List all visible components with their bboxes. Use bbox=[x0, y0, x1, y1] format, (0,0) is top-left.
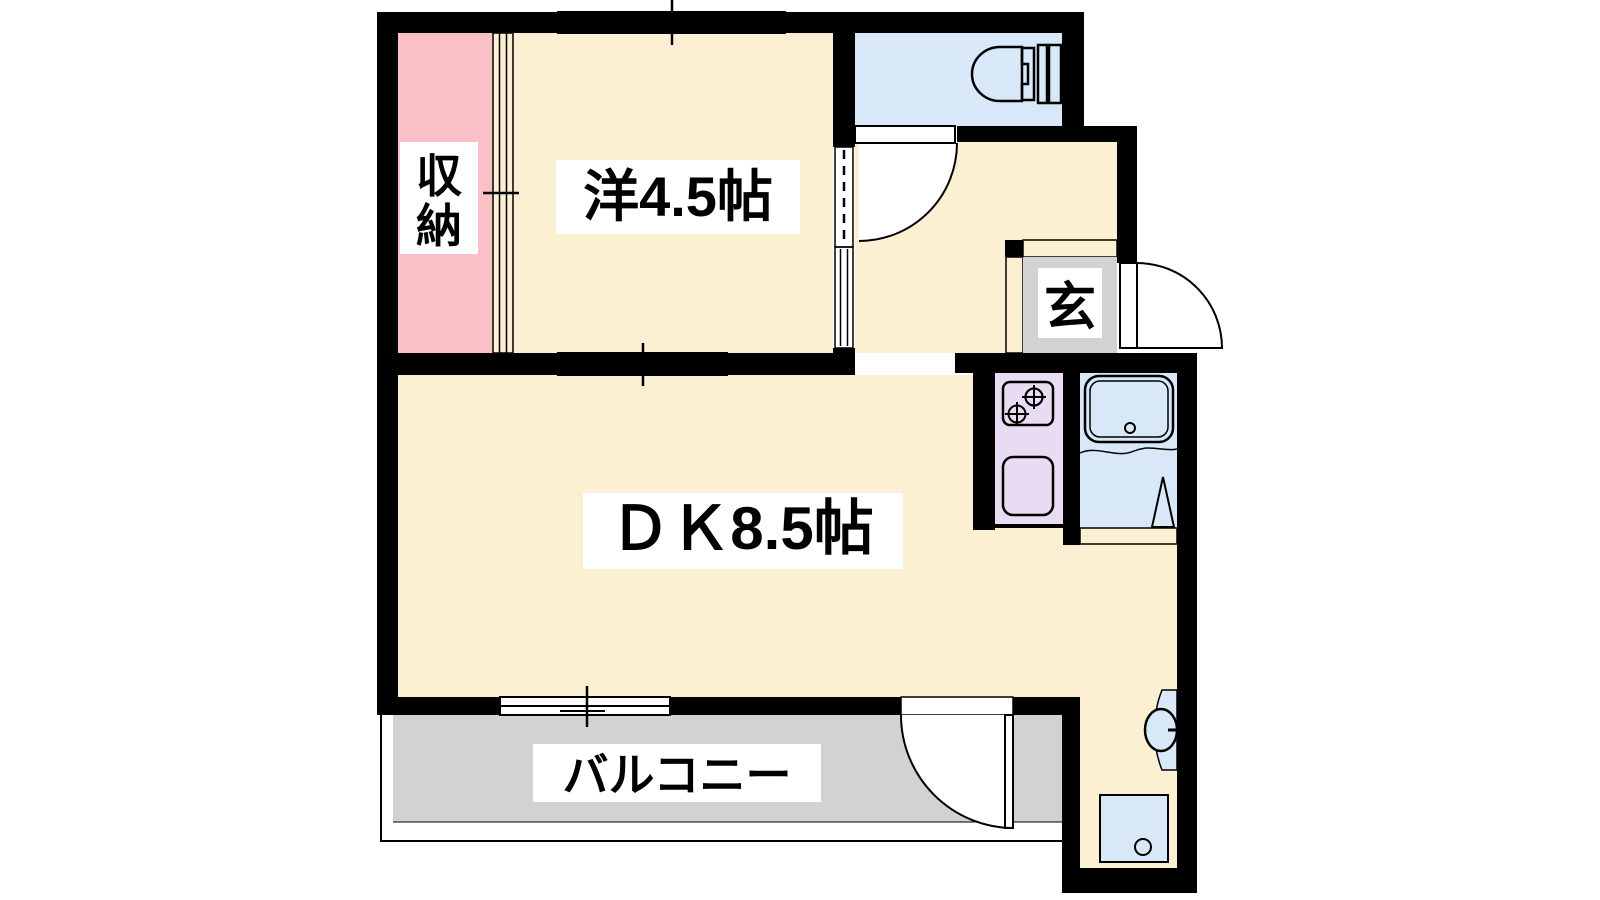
sliding-door-icon bbox=[835, 147, 853, 348]
washing-machine-pan-icon bbox=[1100, 795, 1168, 862]
dk-label: ＤＫ8.5帖 bbox=[610, 495, 873, 562]
closet-label-char2: 納 bbox=[416, 200, 462, 252]
western-room-label: 洋4.5帖 bbox=[583, 165, 773, 228]
entrance-label: 玄 bbox=[1044, 279, 1096, 337]
closet-label-char1: 収 bbox=[416, 150, 462, 202]
entrance-swing-door-icon bbox=[1120, 263, 1222, 348]
bathroom bbox=[1080, 373, 1177, 544]
kitchen-counter bbox=[995, 373, 1063, 528]
balcony-label: バルコニー bbox=[562, 749, 791, 801]
floor-plan-page: 洋4.5帖 収 納 ＤＫ8.5帖 玄 バルコニー bbox=[0, 0, 1600, 900]
floor-plan: 洋4.5帖 収 納 ＤＫ8.5帖 玄 バルコニー bbox=[0, 0, 1600, 900]
